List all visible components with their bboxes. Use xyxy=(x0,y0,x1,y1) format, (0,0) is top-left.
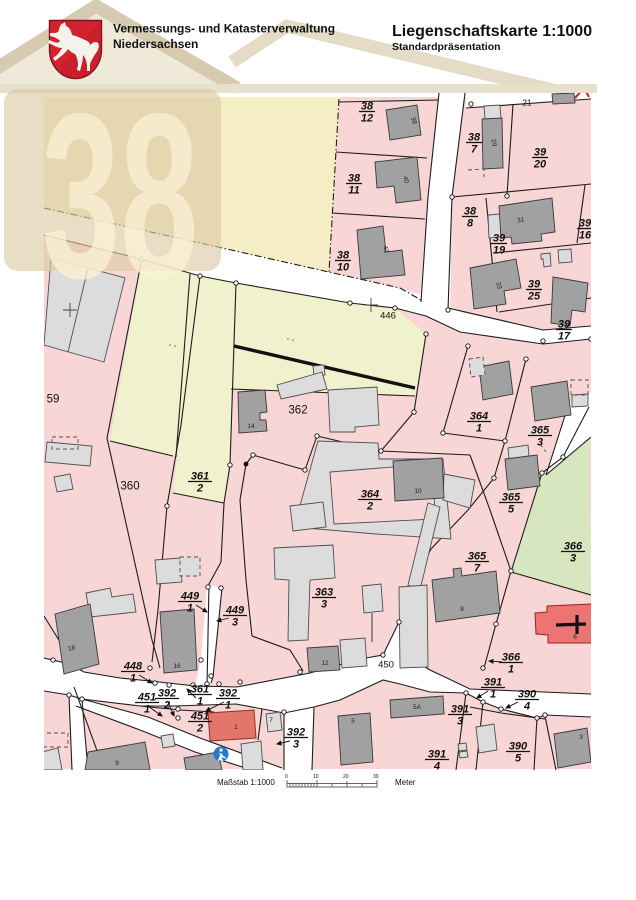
svg-text:5: 5 xyxy=(508,504,515,516)
svg-text:5: 5 xyxy=(515,753,522,765)
svg-text:38: 38 xyxy=(348,173,361,185)
svg-text:7: 7 xyxy=(471,144,478,156)
svg-text:366: 366 xyxy=(502,652,521,664)
svg-text:391: 391 xyxy=(484,677,502,689)
svg-text:365: 365 xyxy=(502,492,521,504)
svg-text:451: 451 xyxy=(190,711,209,723)
svg-text:450: 450 xyxy=(378,660,394,671)
svg-text:8: 8 xyxy=(467,218,474,230)
svg-text:3: 3 xyxy=(579,734,583,741)
svg-text:Niedersachsen: Niedersachsen xyxy=(113,37,198,51)
svg-text:6: 6 xyxy=(573,634,577,641)
svg-text:392: 392 xyxy=(287,727,305,739)
svg-text:1: 1 xyxy=(187,603,193,615)
svg-text:365: 365 xyxy=(468,551,487,563)
svg-text:25: 25 xyxy=(527,291,541,303)
svg-text:Liegenschaftskarte 1:1000: Liegenschaftskarte 1:1000 xyxy=(392,23,592,40)
svg-text:14: 14 xyxy=(247,423,255,430)
svg-text:Meter: Meter xyxy=(395,778,416,787)
svg-text:31: 31 xyxy=(517,216,526,224)
svg-text:16: 16 xyxy=(579,230,592,242)
svg-text:2: 2 xyxy=(366,501,373,513)
svg-text:391: 391 xyxy=(428,749,446,761)
svg-text:39: 39 xyxy=(558,319,571,331)
svg-text:38: 38 xyxy=(337,250,350,262)
svg-text:38: 38 xyxy=(42,66,199,328)
svg-text:446: 446 xyxy=(380,311,396,322)
svg-text:20: 20 xyxy=(533,159,547,171)
svg-text:2: 2 xyxy=(196,483,203,495)
svg-text:392: 392 xyxy=(158,688,176,700)
svg-text:Vermessungs- und Katasterverwa: Vermessungs- und Katasterverwaltung xyxy=(113,22,335,36)
svg-text:449: 449 xyxy=(225,605,245,617)
svg-text:1: 1 xyxy=(476,423,482,435)
svg-text:2: 2 xyxy=(196,723,203,735)
svg-text:364: 364 xyxy=(361,489,379,501)
svg-text:12: 12 xyxy=(321,660,329,667)
svg-text:1: 1 xyxy=(508,664,514,676)
svg-text:1: 1 xyxy=(144,704,150,716)
svg-text:2: 2 xyxy=(163,700,170,712)
svg-text:3: 3 xyxy=(570,553,576,565)
svg-text:0: 0 xyxy=(285,774,288,780)
svg-text:12: 12 xyxy=(361,113,373,125)
svg-text:1: 1 xyxy=(490,689,496,701)
svg-text:5A: 5A xyxy=(413,704,422,711)
svg-text:1: 1 xyxy=(234,724,238,731)
svg-text:449: 449 xyxy=(180,591,200,603)
svg-text:21: 21 xyxy=(522,98,532,108)
svg-text:365: 365 xyxy=(531,425,550,437)
svg-text:7: 7 xyxy=(474,563,481,575)
svg-text:1: 1 xyxy=(197,696,203,708)
svg-text:391: 391 xyxy=(451,704,469,716)
svg-text:3: 3 xyxy=(321,599,327,611)
svg-text:20: 20 xyxy=(343,774,349,780)
svg-text:10: 10 xyxy=(337,262,350,274)
svg-text:390: 390 xyxy=(509,741,528,753)
svg-text:366: 366 xyxy=(564,541,583,553)
svg-text:4: 4 xyxy=(523,701,530,713)
svg-text:38: 38 xyxy=(464,206,477,218)
svg-text:392: 392 xyxy=(219,688,237,700)
svg-text:363: 363 xyxy=(315,587,333,599)
svg-text:3: 3 xyxy=(232,617,238,629)
svg-text:17: 17 xyxy=(558,331,571,343)
svg-text:360: 360 xyxy=(120,481,139,493)
svg-text:10: 10 xyxy=(313,774,319,780)
svg-text:3: 3 xyxy=(293,739,299,751)
svg-text:30: 30 xyxy=(373,774,379,780)
svg-text:1: 1 xyxy=(130,673,136,685)
svg-text:38: 38 xyxy=(468,132,481,144)
svg-text:448: 448 xyxy=(123,661,143,673)
svg-text:39: 39 xyxy=(534,147,547,159)
svg-text:8: 8 xyxy=(460,606,464,613)
svg-text:19: 19 xyxy=(493,245,506,257)
svg-text:364: 364 xyxy=(470,411,488,423)
svg-text:5: 5 xyxy=(351,718,355,725)
svg-text:29: 29 xyxy=(490,139,498,148)
svg-text:9: 9 xyxy=(115,760,119,767)
svg-text:39: 39 xyxy=(493,233,506,245)
svg-text:362: 362 xyxy=(288,405,307,417)
svg-text:11: 11 xyxy=(348,185,359,197)
svg-text:Maßstab 1:1000: Maßstab 1:1000 xyxy=(217,778,275,787)
svg-text:361: 361 xyxy=(191,684,209,696)
svg-text:39: 39 xyxy=(579,218,592,230)
svg-text:3: 3 xyxy=(537,437,543,449)
svg-text:Standardpräsentation: Standardpräsentation xyxy=(392,41,501,53)
svg-text:39: 39 xyxy=(528,279,541,291)
svg-text:1: 1 xyxy=(225,700,231,712)
svg-text:7: 7 xyxy=(269,717,273,724)
svg-text:3: 3 xyxy=(457,716,463,728)
svg-text:38: 38 xyxy=(361,101,374,113)
svg-text:390: 390 xyxy=(518,689,537,701)
svg-text:4: 4 xyxy=(433,761,440,773)
svg-text:16: 16 xyxy=(173,663,181,670)
svg-text:361: 361 xyxy=(191,471,209,483)
svg-text:59: 59 xyxy=(47,394,60,406)
svg-text:10: 10 xyxy=(414,488,422,495)
svg-text:451: 451 xyxy=(137,692,156,704)
